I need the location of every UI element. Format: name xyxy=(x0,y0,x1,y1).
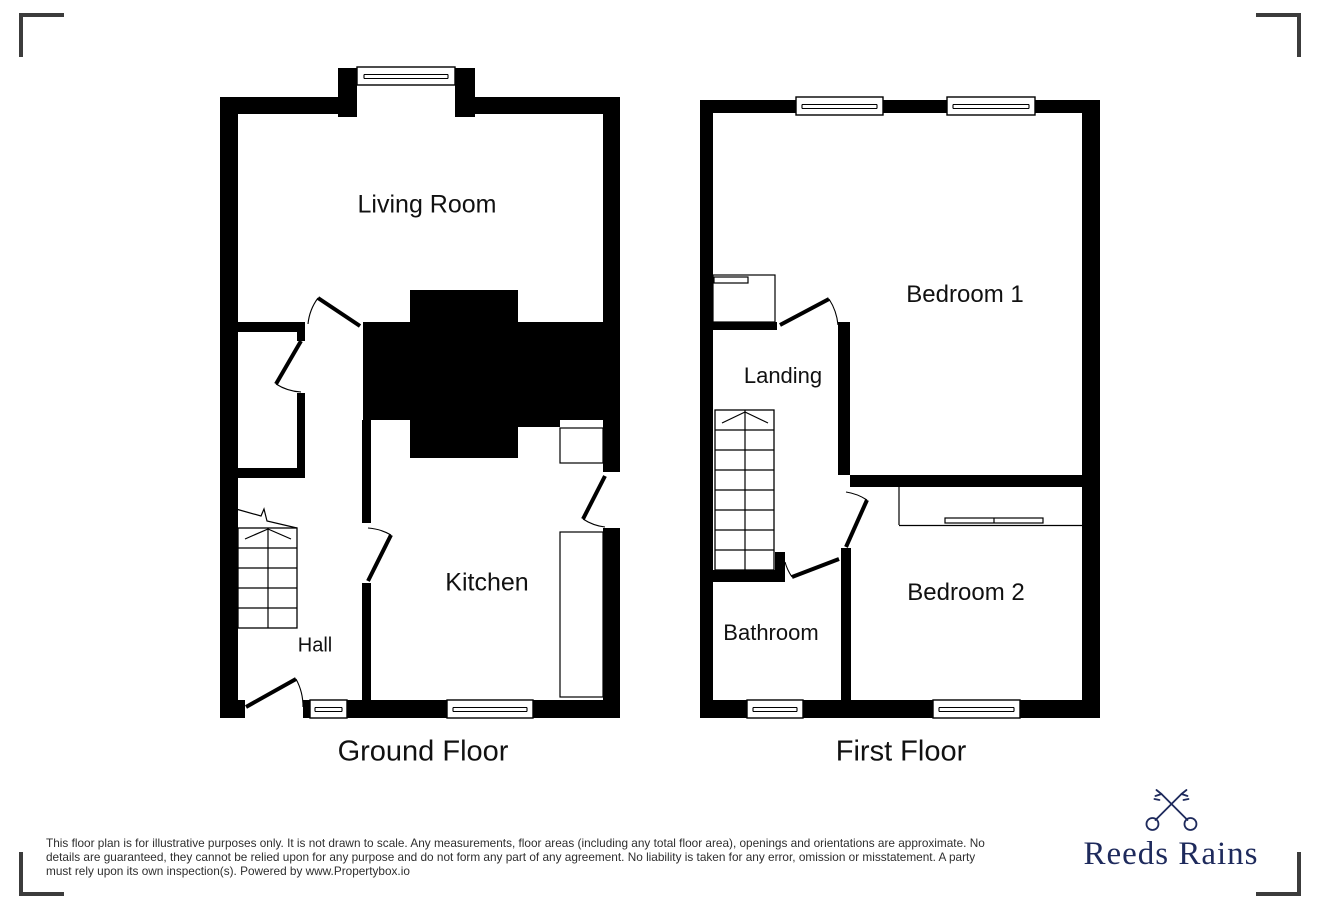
brand-logo: Reeds Rains xyxy=(1083,786,1258,873)
ground-floor-title: Ground Floor xyxy=(338,736,509,769)
window xyxy=(447,700,533,718)
crossed-keys-icon xyxy=(1141,786,1201,834)
staircase xyxy=(715,410,774,570)
door-swing xyxy=(583,476,605,527)
window xyxy=(933,700,1020,718)
kitchen-units xyxy=(560,428,603,697)
room-label-bedroom-1: Bedroom 1 xyxy=(906,281,1023,309)
floorplan-page: Living Room Kitchen Hall Bedroom 1 Landi… xyxy=(0,0,1320,910)
chimney-mass xyxy=(363,290,603,458)
ground-floor-plan xyxy=(220,67,620,718)
door-swing xyxy=(276,341,301,392)
window xyxy=(796,97,883,115)
wardrobe xyxy=(899,487,1082,526)
disclaimer: This floor plan is for illustrative purp… xyxy=(46,836,985,878)
door-swing xyxy=(780,299,838,325)
window xyxy=(310,700,347,718)
door-swing xyxy=(308,298,360,326)
room-label-landing: Landing xyxy=(744,363,822,389)
window xyxy=(947,97,1035,115)
door-swing xyxy=(785,559,839,577)
door-swing xyxy=(368,528,391,581)
room-label-bedroom-2: Bedroom 2 xyxy=(907,579,1024,607)
disclaimer-line: This floor plan is for illustrative purp… xyxy=(46,836,985,850)
room-label-bathroom: Bathroom xyxy=(723,620,818,646)
door-swing xyxy=(846,492,867,547)
window xyxy=(747,700,803,718)
floor-plan-canvas xyxy=(0,0,1320,910)
corner-mark-top-right xyxy=(1256,13,1301,57)
window xyxy=(357,67,455,85)
first-floor-title: First Floor xyxy=(836,736,967,769)
door-swing xyxy=(246,679,303,707)
disclaimer-line: details are guaranteed, they cannot be r… xyxy=(46,850,985,864)
overstairs-cupboard xyxy=(713,275,775,322)
brand-name: Reeds Rains xyxy=(1083,836,1258,873)
corner-mark-top-left xyxy=(19,13,64,57)
room-label-kitchen: Kitchen xyxy=(445,569,528,598)
staircase xyxy=(236,509,297,628)
room-label-hall: Hall xyxy=(298,635,332,658)
disclaimer-line: must rely upon its own inspection(s). Po… xyxy=(46,864,985,878)
corner-mark-bottom-right xyxy=(1256,852,1301,896)
room-label-living-room: Living Room xyxy=(358,191,497,220)
